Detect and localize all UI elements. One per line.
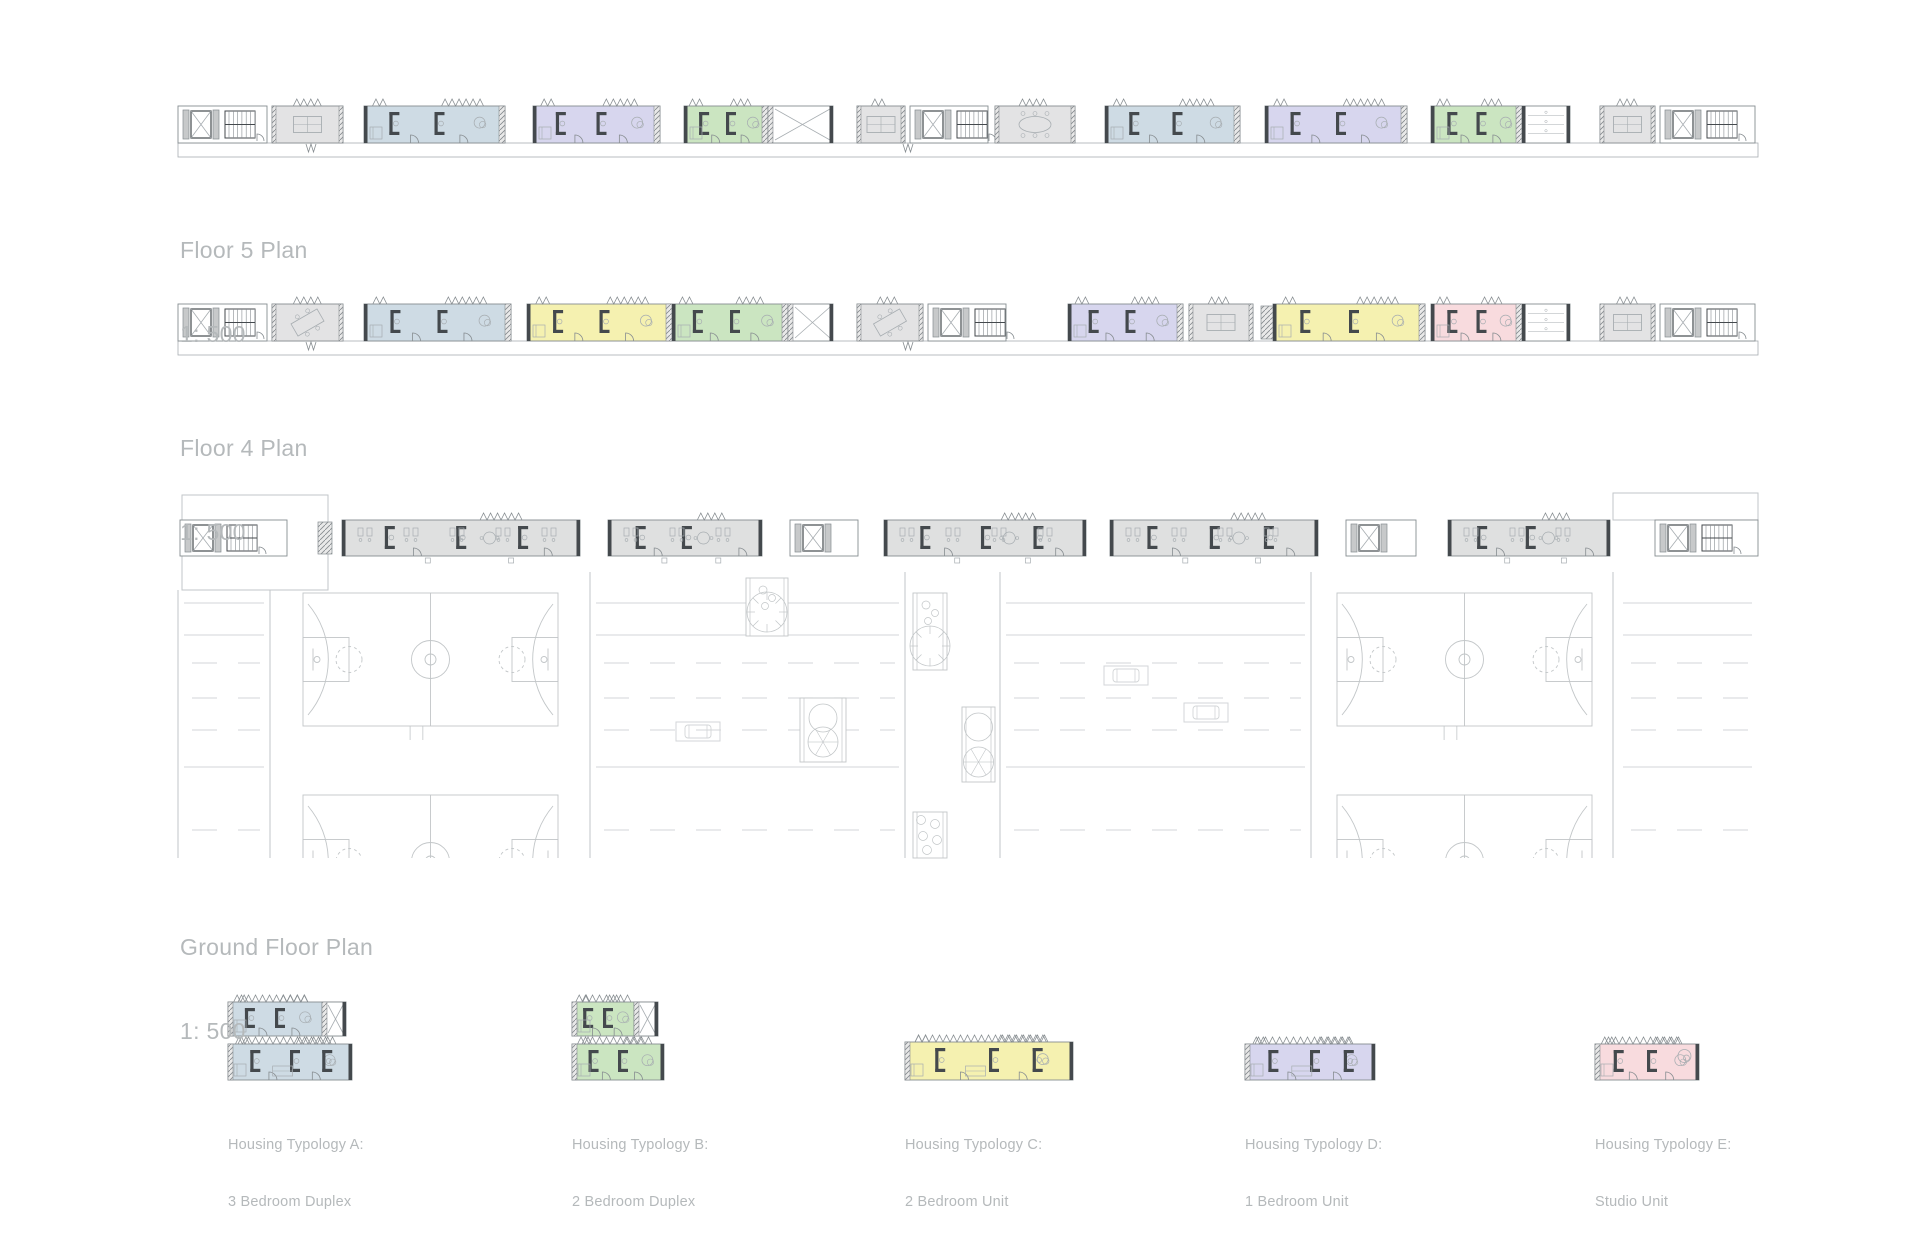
unit-plan <box>905 1035 1073 1080</box>
strip-ground <box>180 493 1758 590</box>
communal-plan <box>342 513 580 563</box>
ground-floor-plan-title: Ground Floor Plan <box>180 933 373 961</box>
planter-bed <box>913 812 947 858</box>
typology-e-label: Housing Typology E: Studio Unit <box>1595 1098 1732 1242</box>
unit-plan <box>1068 297 1183 341</box>
planter-bed <box>962 707 995 782</box>
core-plan <box>910 106 996 143</box>
communal-plan <box>884 513 1086 563</box>
unit-plan <box>1431 297 1522 341</box>
core-plan <box>1660 106 1755 143</box>
car <box>1184 703 1228 722</box>
unit-plan <box>684 99 768 143</box>
typology-b-subtitle: 2 Bedroom Duplex <box>572 1193 709 1212</box>
core-plan <box>790 520 858 556</box>
room-plan <box>995 99 1075 143</box>
typology-c-title: Housing Typology C: <box>905 1136 1042 1155</box>
typology-b-title: Housing Typology B: <box>572 1136 709 1155</box>
typology-c-label: Housing Typology C: 2 Bedroom Unit <box>905 1098 1042 1242</box>
typology-a-label: Housing Typology A: 3 Bedroom Duplex <box>228 1098 364 1242</box>
typology-b-plans <box>572 995 664 1080</box>
core-plan <box>1660 304 1755 341</box>
annex-plan <box>1522 304 1570 341</box>
unit-plan <box>572 995 658 1036</box>
typology-c-plans <box>905 1035 1073 1080</box>
annex-plan <box>768 106 833 143</box>
core-plan <box>928 304 1014 341</box>
unit-plan <box>1105 99 1240 143</box>
annex-plan <box>1522 106 1570 143</box>
car <box>676 722 720 741</box>
floor-5-plan-title: Floor 5 Plan <box>180 236 308 264</box>
room-plan <box>272 99 343 143</box>
core-plan <box>1346 520 1416 556</box>
planter-bed <box>910 593 950 670</box>
ground-floor-plan-label: Ground Floor Plan 1: 500 <box>180 877 373 1101</box>
room-plan <box>857 297 923 341</box>
basketball-court <box>1337 593 1592 740</box>
floor-4-plan-label: Floor 4 Plan 1: 500 <box>180 378 308 602</box>
typology-d-subtitle: 1 Bedroom Unit <box>1245 1193 1382 1212</box>
architectural-sheet: Floor 5 Plan 1: 500 Floor 4 Plan 1: 500 … <box>0 0 1920 1242</box>
ground-floor-plan-scale: 1: 500 <box>180 1017 373 1045</box>
room-plan <box>1600 297 1655 341</box>
typology-e-title: Housing Typology E: <box>1595 1136 1732 1155</box>
typology-a-title: Housing Typology A: <box>228 1136 364 1155</box>
typology-d-plans <box>1245 1037 1375 1080</box>
typology-d-title: Housing Typology D: <box>1245 1136 1382 1155</box>
typology-c-subtitle: 2 Bedroom Unit <box>905 1193 1042 1212</box>
communal-plan <box>1448 513 1610 563</box>
typology-b-label: Housing Typology B: 2 Bedroom Duplex <box>572 1098 709 1242</box>
unit-plan <box>527 297 672 341</box>
floor-5-plan-scale: 1: 500 <box>180 320 308 348</box>
basketball-court <box>1337 795 1592 942</box>
unit-plan <box>572 1037 664 1080</box>
unit-plan <box>672 297 788 341</box>
room-plan <box>857 99 905 143</box>
core-plan <box>1655 520 1758 556</box>
unit-plan <box>1265 99 1407 143</box>
planter-bed <box>800 698 846 762</box>
planter-bed <box>746 578 788 636</box>
unit-plan <box>1431 99 1522 143</box>
communal-plan <box>608 513 762 563</box>
annex-plan <box>788 304 833 341</box>
basketball-court <box>303 593 558 740</box>
typology-e-plans <box>1595 1037 1699 1080</box>
floor-4-plan-title: Floor 4 Plan <box>180 434 308 462</box>
unit-plan <box>1273 297 1425 341</box>
floor-4-plan-scale: 1: 500 <box>180 518 308 546</box>
floor-5-plan-label: Floor 5 Plan 1: 500 <box>180 180 308 404</box>
unit-plan <box>364 297 511 341</box>
car <box>1104 666 1148 685</box>
unit-plan <box>1595 1037 1699 1080</box>
strip-floor4 <box>178 297 1758 355</box>
unit-plan <box>364 99 505 143</box>
core-plan <box>178 106 267 143</box>
typology-d-label: Housing Typology D: 1 Bedroom Unit <box>1245 1098 1382 1242</box>
ground-site <box>178 572 1752 942</box>
strip-floor5 <box>178 99 1758 157</box>
typology-e-subtitle: Studio Unit <box>1595 1193 1732 1212</box>
unit-plan <box>1245 1037 1375 1080</box>
communal-plan <box>1110 513 1318 563</box>
room-plan <box>1600 99 1655 143</box>
typology-a-subtitle: 3 Bedroom Duplex <box>228 1193 364 1212</box>
unit-plan <box>533 99 660 143</box>
room-plan <box>1189 297 1253 341</box>
